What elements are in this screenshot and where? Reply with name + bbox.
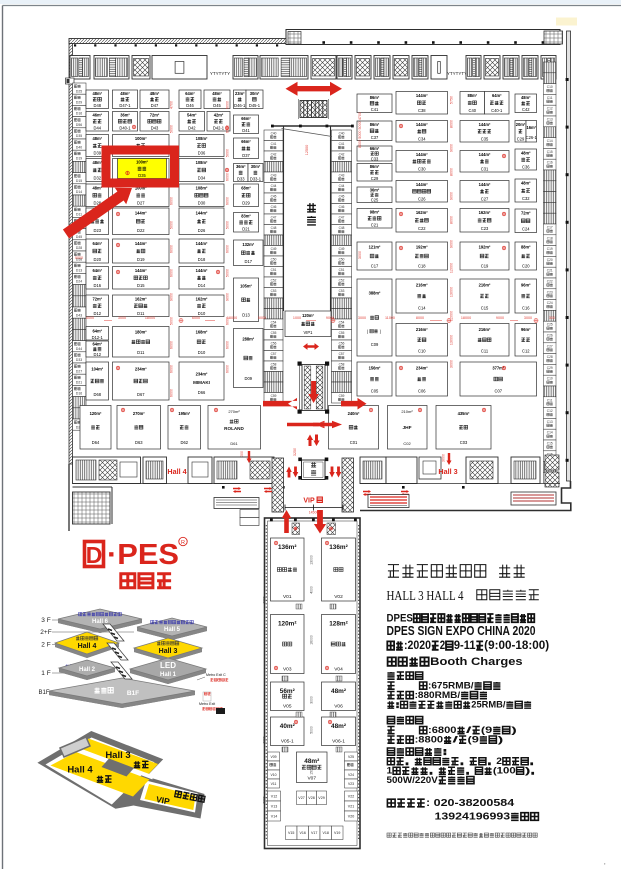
svg-text:2 F: 2 F	[41, 642, 50, 649]
svg-text:D13: D13	[76, 269, 82, 273]
svg-text:V25: V25	[348, 755, 354, 759]
svg-text:Hall 5: Hall 5	[164, 627, 181, 633]
svg-text:16000: 16000	[310, 635, 314, 645]
svg-text:C35: C35	[481, 136, 489, 141]
svg-text:D35: D35	[76, 134, 82, 138]
svg-text:8000: 8000	[450, 120, 454, 128]
svg-text:HALL 3 HALL 4: HALL 3 HALL 4	[387, 588, 464, 603]
svg-text::2020: :2020	[404, 640, 431, 652]
svg-text:D37: D37	[242, 153, 250, 158]
svg-text:C21: C21	[547, 269, 553, 273]
svg-text:C44: C44	[271, 184, 277, 188]
svg-text::8800: :8800	[415, 735, 444, 746]
svg-text:8000: 8000	[86, 316, 94, 320]
svg-text:C40: C40	[271, 132, 277, 136]
svg-text:D47: D47	[151, 103, 159, 108]
svg-text:V07: V07	[307, 776, 316, 782]
svg-text:(9: (9	[481, 725, 492, 736]
svg-text:14500: 14500	[309, 511, 319, 515]
svg-text:104m²: 104m²	[91, 366, 103, 371]
svg-text:Hall 4: Hall 4	[67, 765, 93, 776]
svg-text:D28: D28	[76, 246, 82, 250]
svg-text:D68: D68	[93, 392, 101, 397]
svg-text:/: /	[452, 735, 458, 746]
svg-text:C15: C15	[547, 442, 553, 446]
svg-text:C24: C24	[522, 226, 530, 231]
svg-text:V10: V10	[270, 773, 276, 777]
svg-text:144m²: 144m²	[135, 268, 147, 273]
svg-text:6000: 6000	[170, 365, 174, 373]
svg-text:C42: C42	[271, 153, 277, 157]
svg-text:C14: C14	[547, 431, 553, 435]
svg-text:2000: 2000	[263, 736, 267, 743]
svg-text:C29: C29	[517, 136, 525, 141]
svg-text:D11: D11	[76, 213, 82, 217]
svg-text:Hall 4: Hall 4	[78, 643, 97, 650]
svg-text:C14: C14	[418, 305, 426, 310]
svg-text:12000: 12000	[450, 263, 454, 273]
svg-text:48m²: 48m²	[331, 688, 346, 695]
svg-text:D46-1: D46-1	[234, 103, 246, 108]
svg-text:D35: D35	[138, 173, 146, 178]
svg-text:D16: D16	[93, 283, 101, 288]
svg-text:Hall 1: Hall 1	[160, 672, 177, 678]
svg-text:144m²: 144m²	[196, 268, 208, 273]
svg-text:162m²: 162m²	[479, 210, 491, 215]
svg-text:144m²: 144m²	[479, 152, 491, 157]
svg-text:V06: V06	[334, 704, 343, 710]
svg-text:C52: C52	[271, 279, 277, 283]
svg-text:3 F: 3 F	[41, 617, 50, 624]
svg-text:V22: V22	[348, 795, 354, 799]
svg-text:3000: 3000	[310, 696, 314, 704]
svg-text:C26: C26	[418, 196, 426, 201]
svg-text:66m²: 66m²	[241, 139, 251, 144]
svg-text:96m²: 96m²	[521, 327, 531, 332]
svg-text:C12: C12	[547, 107, 553, 111]
svg-text:B1F: B1F	[127, 690, 139, 697]
svg-text:D41: D41	[242, 128, 250, 133]
svg-text:C10: C10	[547, 85, 553, 89]
svg-text:JHF: JHF	[402, 425, 411, 431]
svg-text:4000: 4000	[310, 586, 314, 594]
svg-text:136m²: 136m²	[329, 544, 347, 551]
svg-text:8000 5000 5000 4700: 8000 5000 5000 4700	[358, 112, 362, 148]
svg-text:V15: V15	[288, 831, 294, 835]
svg-text:64m²: 64m²	[185, 91, 195, 96]
svg-text:C51: C51	[271, 268, 277, 272]
svg-text:D25: D25	[76, 89, 82, 93]
svg-text:C54: C54	[339, 321, 345, 325]
svg-text:D14: D14	[76, 190, 82, 194]
svg-text:C53: C53	[271, 289, 277, 293]
svg-text:D19: D19	[76, 157, 82, 161]
svg-text:(100: (100	[493, 766, 516, 777]
svg-text:195m²: 195m²	[178, 411, 190, 416]
svg-text:388m²: 388m²	[369, 290, 381, 295]
svg-text:144m²: 144m²	[196, 210, 208, 215]
svg-text:40m²: 40m²	[280, 723, 295, 730]
svg-text:162m²: 162m²	[196, 296, 208, 301]
svg-text:D24: D24	[76, 280, 82, 284]
svg-text:18000: 18000	[145, 316, 155, 320]
svg-text:V14: V14	[271, 815, 277, 819]
svg-text:C42: C42	[522, 107, 530, 112]
svg-text:D18: D18	[198, 257, 206, 262]
svg-text:D45-1: D45-1	[249, 103, 261, 108]
svg-text:D42-1: D42-1	[213, 126, 225, 131]
svg-text:5000: 5000	[170, 317, 174, 325]
svg-text:D15: D15	[137, 283, 145, 288]
svg-text:6000: 6000	[170, 341, 174, 349]
svg-text:11000: 11000	[385, 316, 395, 320]
svg-text:C58: C58	[339, 363, 345, 367]
svg-text:C11: C11	[481, 349, 489, 354]
svg-text:C12: C12	[522, 349, 530, 354]
svg-text:LED: LED	[160, 661, 176, 670]
svg-text:): )	[498, 735, 504, 746]
svg-text:·PES: ·PES	[107, 539, 179, 571]
svg-text:C56: C56	[271, 342, 277, 346]
svg-text:V23: V23	[348, 782, 354, 786]
svg-text:C57: C57	[339, 352, 345, 356]
svg-text:Booth Charges: Booth Charges	[430, 656, 522, 668]
svg-text:C33: C33	[371, 156, 379, 161]
svg-text:48m²: 48m²	[304, 758, 319, 765]
svg-text:C49: C49	[339, 247, 345, 251]
svg-text:D21: D21	[242, 227, 250, 232]
svg-text:V04: V04	[334, 667, 343, 673]
svg-text:C38: C38	[418, 108, 426, 113]
svg-text:234m²: 234m²	[416, 366, 428, 371]
svg-text:C41: C41	[271, 142, 277, 146]
svg-text:13000: 13000	[450, 335, 454, 345]
svg-text:C50: C50	[339, 258, 345, 262]
svg-text:9000: 9000	[496, 316, 504, 320]
svg-text:C56: C56	[339, 342, 345, 346]
svg-text:64m²: 64m²	[92, 341, 102, 346]
svg-text:C23: C23	[547, 290, 553, 294]
svg-text:100m²: 100m²	[136, 160, 148, 165]
svg-text:D48: D48	[93, 103, 101, 108]
svg-text:C49: C49	[271, 247, 277, 251]
svg-text:13000: 13000	[450, 287, 454, 297]
svg-text:C14: C14	[547, 139, 553, 143]
svg-text:9000: 9000	[170, 293, 174, 301]
svg-text:121m²: 121m²	[369, 245, 381, 250]
svg-text:144m²: 144m²	[479, 122, 491, 127]
svg-text:D10: D10	[198, 350, 206, 355]
svg-text:D42: D42	[188, 126, 196, 131]
svg-text:D40-1: D40-1	[119, 126, 131, 131]
svg-text:C52: C52	[339, 279, 345, 283]
svg-text:D30: D30	[198, 201, 206, 206]
svg-text:C11: C11	[547, 96, 553, 100]
svg-text:C02: C02	[403, 441, 411, 446]
svg-text:5000: 5000	[226, 221, 230, 229]
svg-text:D47-1: D47-1	[119, 103, 131, 108]
svg-text:C25: C25	[371, 198, 379, 203]
svg-text:MIMAKI: MIMAKI	[193, 380, 210, 385]
svg-text:C51: C51	[339, 268, 345, 272]
svg-text:156m²: 156m²	[369, 366, 381, 371]
svg-text:12500: 12500	[305, 145, 309, 156]
svg-text:VIP1: VIP1	[304, 330, 314, 335]
svg-text:C37: C37	[371, 135, 379, 140]
svg-text:C41: C41	[371, 107, 379, 112]
svg-text:C57: C57	[271, 352, 277, 356]
svg-text:48m²: 48m²	[331, 723, 346, 730]
svg-text:V11: V11	[271, 782, 277, 786]
svg-text:234m²: 234m²	[196, 372, 208, 377]
svg-text:Hall 4: Hall 4	[167, 467, 186, 476]
svg-text:C03: C03	[460, 440, 468, 445]
svg-text:5750: 5750	[450, 96, 454, 104]
svg-text:D33-1: D33-1	[250, 176, 262, 181]
svg-text:Hall 3: Hall 3	[105, 750, 130, 761]
svg-text:V06-1: V06-1	[332, 739, 345, 745]
svg-text:6000: 6000	[170, 389, 174, 397]
svg-text:D63: D63	[135, 440, 143, 445]
svg-text:144m²: 144m²	[416, 93, 428, 98]
svg-text:C16: C16	[522, 305, 530, 310]
svg-text:VIP: VIP	[303, 498, 315, 505]
svg-text:D13: D13	[242, 312, 250, 317]
svg-text:D26: D26	[198, 228, 206, 233]
svg-text:D12: D12	[93, 311, 101, 316]
svg-text:D66: D66	[198, 390, 206, 395]
svg-text:64m²: 64m²	[492, 93, 502, 98]
svg-text:86m²: 86m²	[370, 122, 380, 127]
svg-text:48m²: 48m²	[521, 150, 531, 155]
svg-text:C15: C15	[481, 305, 489, 310]
svg-text:D34: D34	[198, 176, 206, 181]
svg-text:C29: C29	[547, 366, 553, 370]
svg-text:D36: D36	[198, 151, 206, 156]
svg-text:8000: 8000	[416, 316, 424, 320]
svg-text:4700: 4700	[170, 101, 174, 109]
svg-text:C20: C20	[522, 263, 530, 268]
svg-text:6000: 6000	[170, 269, 174, 277]
svg-text:C17: C17	[371, 263, 379, 268]
svg-text:144m²: 144m²	[416, 122, 428, 127]
svg-text:72m²: 72m²	[92, 296, 102, 301]
svg-text:64m²: 64m²	[92, 328, 102, 333]
svg-text:V12: V12	[271, 795, 277, 799]
svg-text:6000: 6000	[226, 173, 230, 181]
svg-text:C40: C40	[468, 108, 476, 113]
svg-text:300: 300	[549, 316, 555, 320]
svg-text:9000: 9000	[450, 144, 454, 152]
svg-text:C29: C29	[371, 176, 379, 181]
svg-text:D20: D20	[93, 257, 101, 262]
svg-text:216m²: 216m²	[479, 283, 491, 288]
svg-text:54m²: 54m²	[187, 113, 197, 118]
svg-text:500W/220V: 500W/220V	[387, 775, 439, 786]
svg-text:D19: D19	[137, 257, 145, 262]
svg-text:144m²: 144m²	[196, 241, 208, 246]
svg-text:18000: 18000	[461, 316, 471, 320]
svg-text:D29: D29	[242, 201, 250, 206]
svg-text:5000: 5000	[226, 149, 230, 157]
svg-text:C54: C54	[271, 321, 277, 325]
svg-text:C18: C18	[547, 236, 553, 240]
svg-text:V02: V02	[334, 594, 343, 600]
svg-text:3000: 3000	[358, 251, 362, 259]
svg-text:144m²: 144m²	[416, 182, 428, 187]
svg-text:V13: V13	[271, 805, 277, 809]
svg-text:C13: C13	[547, 118, 553, 122]
svg-text:D16: D16	[76, 392, 82, 396]
svg-text:48m²: 48m²	[92, 186, 102, 191]
svg-text:88m²: 88m²	[521, 245, 531, 250]
svg-text:C32: C32	[522, 196, 530, 201]
svg-text:V05-1: V05-1	[281, 739, 294, 745]
svg-text:C06: C06	[418, 388, 426, 393]
svg-text:3000: 3000	[524, 316, 532, 320]
svg-text:D09: D09	[244, 376, 252, 381]
svg-text:48m²: 48m²	[120, 91, 130, 96]
svg-text:9-11: 9-11	[454, 640, 476, 652]
svg-text:72m²: 72m²	[521, 211, 531, 216]
svg-text:234m²: 234m²	[135, 366, 147, 371]
svg-text:D62: D62	[180, 440, 188, 445]
svg-text:C43: C43	[339, 174, 345, 178]
svg-text:83m²: 83m²	[241, 214, 251, 219]
svg-text:144m²: 144m²	[135, 210, 147, 215]
svg-text:C41: C41	[339, 142, 345, 146]
svg-text:6000: 6000	[170, 245, 174, 253]
svg-text:6000: 6000	[226, 197, 230, 205]
svg-text:D64: D64	[92, 440, 100, 445]
svg-text:6000: 6000	[226, 125, 230, 133]
svg-text:144m²: 144m²	[416, 152, 428, 157]
svg-text:C26-1: C26-1	[526, 135, 538, 140]
svg-text:88m²: 88m²	[467, 93, 477, 98]
svg-text:108m²: 108m²	[196, 160, 208, 165]
svg-text:2: 2	[440, 640, 445, 652]
svg-text:D44: D44	[76, 347, 82, 351]
svg-text:435m²: 435m²	[458, 411, 470, 416]
svg-text:30m²: 30m²	[251, 164, 261, 169]
svg-text:D44: D44	[93, 126, 101, 131]
svg-text:48m²: 48m²	[521, 95, 531, 100]
svg-text:V16: V16	[299, 831, 305, 835]
svg-text:C43: C43	[271, 174, 277, 178]
svg-text:5000: 5000	[170, 125, 174, 133]
svg-text:46m²: 46m²	[92, 113, 102, 118]
svg-text:D14: D14	[198, 283, 206, 288]
svg-text:V09: V09	[270, 755, 276, 759]
svg-text:144m²: 144m²	[479, 182, 491, 187]
svg-text:C45: C45	[271, 195, 277, 199]
svg-text:C22: C22	[547, 280, 553, 284]
svg-text:DPES SIGN EXPO CHINA 2020: DPES SIGN EXPO CHINA 2020	[387, 623, 536, 638]
svg-text:64m²: 64m²	[92, 241, 102, 246]
svg-text:48m²: 48m²	[92, 91, 102, 96]
svg-text:V18: V18	[322, 831, 328, 835]
svg-text:30m²: 30m²	[250, 91, 260, 96]
svg-text:6000: 6000	[170, 197, 174, 205]
svg-text:C16: C16	[547, 161, 553, 165]
svg-text:C07: C07	[494, 388, 502, 393]
svg-text:216m²: 216m²	[416, 327, 428, 332]
svg-text:Hall 2: Hall 2	[79, 667, 96, 673]
svg-text:120m²: 120m²	[278, 621, 296, 628]
svg-text:2000: 2000	[263, 596, 267, 603]
svg-text:6000: 6000	[226, 245, 230, 253]
svg-text:C48: C48	[339, 226, 345, 230]
svg-text:180m²: 180m²	[135, 329, 147, 334]
svg-text:15000: 15000	[310, 765, 314, 775]
svg-text:5000: 5000	[226, 269, 230, 277]
svg-text:9000: 9000	[450, 192, 454, 200]
svg-text:D27: D27	[137, 201, 145, 206]
svg-text:V27: V27	[298, 796, 304, 800]
svg-text:C13: C13	[547, 420, 553, 424]
svg-text:20m²: 20m²	[516, 122, 526, 127]
svg-text:D23: D23	[93, 228, 101, 233]
svg-text:86m²: 86m²	[370, 164, 380, 169]
svg-text:V24: V24	[348, 773, 354, 777]
svg-text:D46: D46	[186, 103, 194, 108]
svg-text:C19: C19	[547, 247, 553, 251]
svg-text:98m²: 98m²	[370, 210, 380, 215]
svg-text:D56: D56	[76, 123, 82, 127]
svg-text:D: D	[86, 542, 103, 568]
svg-text:66m²: 66m²	[241, 116, 251, 121]
svg-text:64m²: 64m²	[92, 268, 102, 273]
svg-text:C30: C30	[418, 166, 426, 171]
svg-text:108m²: 108m²	[196, 136, 208, 141]
svg-text:36m²: 36m²	[370, 187, 380, 192]
svg-text:R: R	[181, 540, 185, 546]
svg-text:9000: 9000	[450, 240, 454, 248]
svg-text:128m²: 128m²	[329, 621, 347, 628]
svg-text:168m²: 168m²	[196, 329, 208, 334]
svg-text:23m²: 23m²	[235, 91, 245, 96]
svg-text:72m²: 72m²	[150, 113, 160, 118]
svg-text:D33: D33	[76, 358, 82, 362]
svg-text:136m²: 136m²	[278, 544, 296, 551]
svg-text:: 020-38200584: : 020-38200584	[426, 797, 514, 809]
svg-text:(9:00-18:00): (9:00-18:00)	[484, 640, 549, 652]
svg-text:D39: D39	[93, 151, 101, 156]
svg-text:C48: C48	[271, 226, 277, 230]
svg-text:48m²: 48m²	[150, 91, 160, 96]
svg-text:C36: C36	[522, 164, 530, 169]
svg-text:16m²: 16m²	[526, 125, 536, 130]
svg-text:D12: D12	[93, 352, 101, 357]
svg-text:C31: C31	[481, 166, 489, 171]
svg-text:V20: V20	[348, 815, 354, 819]
svg-text:C50: C50	[271, 258, 277, 262]
svg-text:Metro Exit C: Metro Exit C	[206, 673, 226, 677]
svg-text:5000: 5000	[258, 316, 266, 320]
svg-text:Hall 3: Hall 3	[159, 648, 178, 655]
svg-text:D43: D43	[151, 126, 159, 131]
svg-text:ROLAND: ROLAND	[224, 426, 244, 431]
svg-text:Metro Exit: Metro Exit	[199, 702, 215, 706]
svg-text:5000: 5000	[170, 221, 174, 229]
svg-text:2+F: 2+F	[40, 629, 51, 636]
svg-text:C59: C59	[271, 394, 277, 398]
svg-text:192m²: 192m²	[479, 245, 491, 250]
svg-text:D22: D22	[137, 228, 145, 233]
svg-text:216m²: 216m²	[416, 283, 428, 288]
svg-text:C12: C12	[547, 409, 553, 413]
svg-text:C59: C59	[339, 394, 345, 398]
